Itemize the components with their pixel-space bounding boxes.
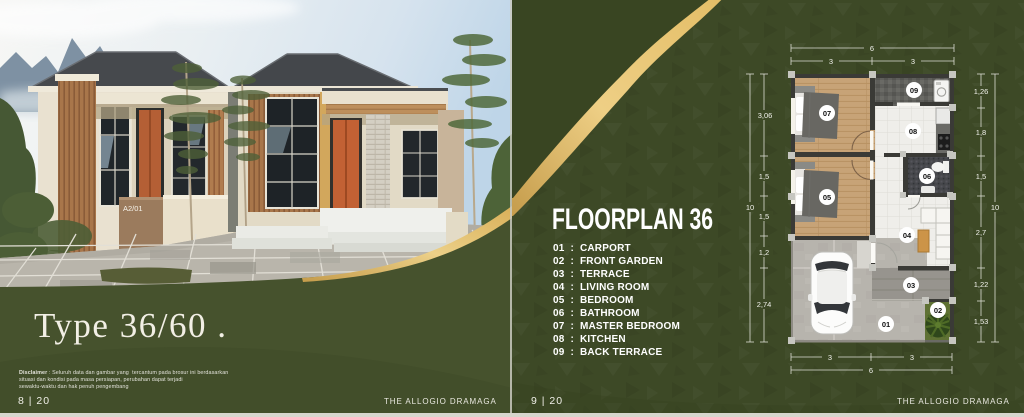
svg-text:3: 3 — [829, 57, 833, 66]
svg-text:3: 3 — [828, 353, 832, 362]
svg-text:2,74: 2,74 — [757, 300, 772, 309]
svg-text:3: 3 — [911, 57, 915, 66]
svg-text:1,2: 1,2 — [759, 248, 769, 257]
svg-text:6: 6 — [869, 366, 873, 375]
svg-text:1,5: 1,5 — [759, 212, 769, 221]
svg-text:08: 08 — [909, 127, 917, 136]
svg-text:10: 10 — [746, 203, 754, 212]
svg-text:01: 01 — [882, 320, 890, 329]
svg-text:1,53: 1,53 — [974, 317, 989, 326]
svg-text:3,06: 3,06 — [758, 111, 773, 120]
svg-text:1,26: 1,26 — [974, 87, 989, 96]
svg-text:6: 6 — [870, 44, 874, 53]
svg-text:05: 05 — [823, 193, 831, 202]
svg-text:3: 3 — [910, 353, 914, 362]
svg-text:07: 07 — [823, 109, 831, 118]
svg-text:2,7: 2,7 — [976, 228, 986, 237]
svg-text:1,5: 1,5 — [976, 172, 986, 181]
svg-text:10: 10 — [991, 203, 999, 212]
svg-text:1,5: 1,5 — [759, 172, 769, 181]
svg-text:09: 09 — [910, 86, 918, 95]
svg-text:04: 04 — [903, 231, 912, 240]
svg-text:06: 06 — [923, 172, 931, 181]
svg-text:A2/01: A2/01 — [123, 204, 143, 213]
svg-text:03: 03 — [907, 281, 915, 290]
svg-text:02: 02 — [934, 306, 942, 315]
svg-text:1,8: 1,8 — [976, 128, 986, 137]
svg-text:1,22: 1,22 — [974, 280, 989, 289]
